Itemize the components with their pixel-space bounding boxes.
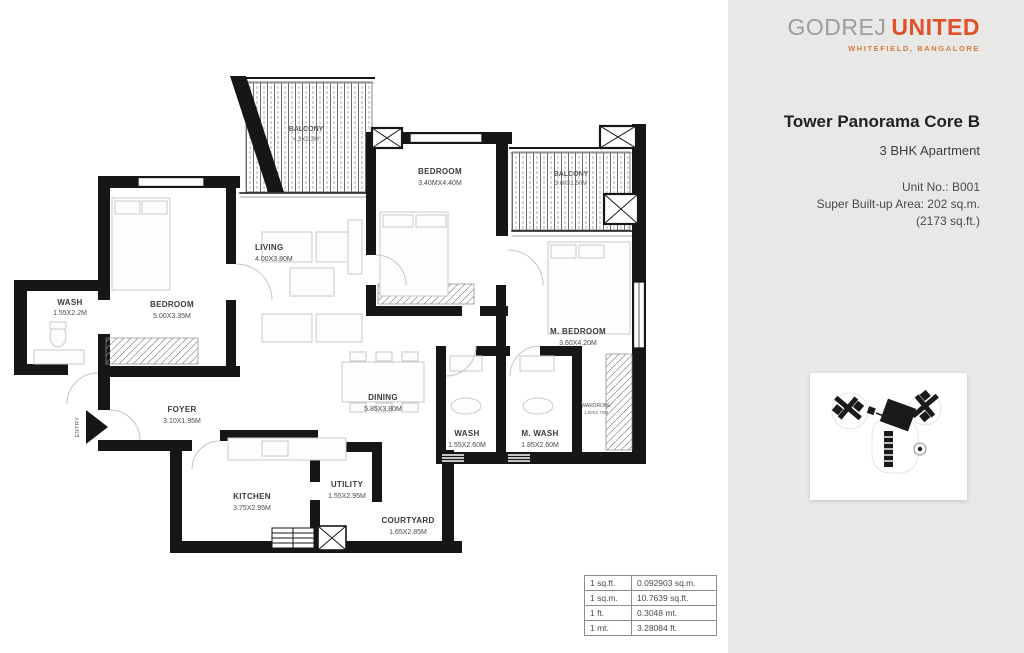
brand-logo: GODREJUNITED WHITEFIELD, BANGALORE xyxy=(788,14,980,53)
room-label-wash-center: WASH 1.55X2.60M xyxy=(448,429,486,449)
svg-text:1.55X2.95M: 1.55X2.95M xyxy=(328,493,366,500)
conv-cell: 1 sq.ft. xyxy=(585,576,632,591)
room-label-utility: UTILITY 1.55X2.95M xyxy=(328,480,366,500)
svg-text:1.55X2.60M: 1.55X2.60M xyxy=(448,442,486,449)
svg-text:DINING: DINING xyxy=(368,393,398,402)
svg-text:FOYER: FOYER xyxy=(167,405,196,414)
svg-text:5.85X3.80M: 5.85X3.80M xyxy=(364,406,402,413)
svg-text:1.60X2.70M: 1.60X2.70M xyxy=(584,410,609,415)
page-title: Tower Panorama Core B xyxy=(784,112,980,132)
conv-cell: 1 ft. xyxy=(585,606,632,621)
conv-cell: 10.7639 sq.ft. xyxy=(632,591,717,606)
room-label-courtyard: COURTYARD 1.65X2.85M xyxy=(381,516,434,536)
balcony-hatch xyxy=(246,82,630,230)
room-label-foyer: FOYER 3.10X1.95M xyxy=(163,405,201,425)
info-panel: GODREJUNITED WHITEFIELD, BANGALORE Tower… xyxy=(728,0,1024,653)
room-label-master-bedroom: M. BEDROOM 3.60X4.20M xyxy=(550,327,606,347)
brochure-page: ENTRY WASH 1.55X2.2M BEDROOM 5.00X3.35M … xyxy=(0,0,1024,653)
svg-text:WARDROBE: WARDROBE xyxy=(581,403,611,409)
entry-label: ENTRY xyxy=(75,417,81,438)
room-label-bedroom-top: BEDROOM 3.40MX4.40M xyxy=(418,167,462,187)
conv-cell: 0.092903 sq.m. xyxy=(632,576,717,591)
svg-text:M. BEDROOM: M. BEDROOM xyxy=(550,327,606,336)
conv-cell: 1 mt. xyxy=(585,621,632,636)
built-up-area-sqft: (2173 sq.ft.) xyxy=(817,213,980,230)
svg-text:5.00X3.35M: 5.00X3.35M xyxy=(153,313,191,320)
svg-text:BEDROOM: BEDROOM xyxy=(150,300,194,309)
svg-text:1.85X2.60M: 1.85X2.60M xyxy=(521,442,559,449)
table-row: 1 sq.m. 10.7639 sq.ft. xyxy=(585,591,717,606)
compass-icon xyxy=(914,443,926,455)
key-plan xyxy=(810,373,967,500)
svg-text:WASH: WASH xyxy=(57,298,82,307)
conv-cell: 0.3048 mt. xyxy=(632,606,717,621)
brand-name-united: UNITED xyxy=(891,14,980,40)
room-label-bedroom-left: BEDROOM 5.00X3.35M xyxy=(150,300,194,320)
svg-text:3.60X1.50M: 3.60X1.50M xyxy=(555,181,587,187)
svg-text:4.00X3.80M: 4.00X3.80M xyxy=(255,256,293,263)
key-plan-diagram xyxy=(810,373,967,500)
svg-text:COURTYARD: COURTYARD xyxy=(381,516,434,525)
svg-text:WASH: WASH xyxy=(454,429,479,438)
svg-text:1.55X2.2M: 1.55X2.2M xyxy=(53,310,87,317)
svg-text:LIVING: LIVING xyxy=(255,243,283,252)
svg-text:BALCONY: BALCONY xyxy=(554,171,589,178)
room-label-kitchen: KITCHEN 3.75X2.95M xyxy=(233,492,271,512)
svg-text:BALCONY: BALCONY xyxy=(289,126,324,133)
conversion-table: 1 sq.ft. 0.092903 sq.m. 1 sq.m. 10.7639 … xyxy=(584,575,717,636)
svg-text:KITCHEN: KITCHEN xyxy=(233,492,271,501)
conv-cell: 3.28084 ft. xyxy=(632,621,717,636)
table-row: 1 ft. 0.3048 mt. xyxy=(585,606,717,621)
svg-text:3.40MX4.40M: 3.40MX4.40M xyxy=(418,180,462,187)
svg-text:3.60X4.20M: 3.60X4.20M xyxy=(559,340,597,347)
svg-text:BEDROOM: BEDROOM xyxy=(418,167,462,176)
brand-location: WHITEFIELD, BANGALORE xyxy=(788,44,980,53)
room-label-wash-left: WASH 1.55X2.2M xyxy=(53,298,87,317)
svg-text:UTILITY: UTILITY xyxy=(331,480,364,489)
svg-text:1.65X2.85M: 1.65X2.85M xyxy=(389,529,427,536)
built-up-area: Super Built-up Area: 202 sq.m. xyxy=(817,196,980,213)
apartment-type: 3 BHK Apartment xyxy=(784,143,980,158)
svg-text:4.3X2.3M: 4.3X2.3M xyxy=(293,137,319,143)
table-row: 1 mt. 3.28084 ft. xyxy=(585,621,717,636)
conv-cell: 1 sq.m. xyxy=(585,591,632,606)
svg-text:3.75X2.95M: 3.75X2.95M xyxy=(233,505,271,512)
entry-arrow-icon: ENTRY xyxy=(75,410,108,444)
svg-text:M. WASH: M. WASH xyxy=(521,429,558,438)
svg-text:3.10X1.95M: 3.10X1.95M xyxy=(163,418,201,425)
tower-cluster-left xyxy=(827,388,868,428)
table-row: 1 sq.ft. 0.092903 sq.m. xyxy=(585,576,717,591)
tower-bar xyxy=(884,431,893,467)
unit-number: Unit No.: B001 xyxy=(817,179,980,196)
brand-name-godrej: GODREJ xyxy=(788,14,887,40)
room-label-master-wash: M. WASH 1.85X2.60M xyxy=(521,429,559,449)
floor-plan: ENTRY WASH 1.55X2.2M BEDROOM 5.00X3.35M … xyxy=(0,0,728,653)
